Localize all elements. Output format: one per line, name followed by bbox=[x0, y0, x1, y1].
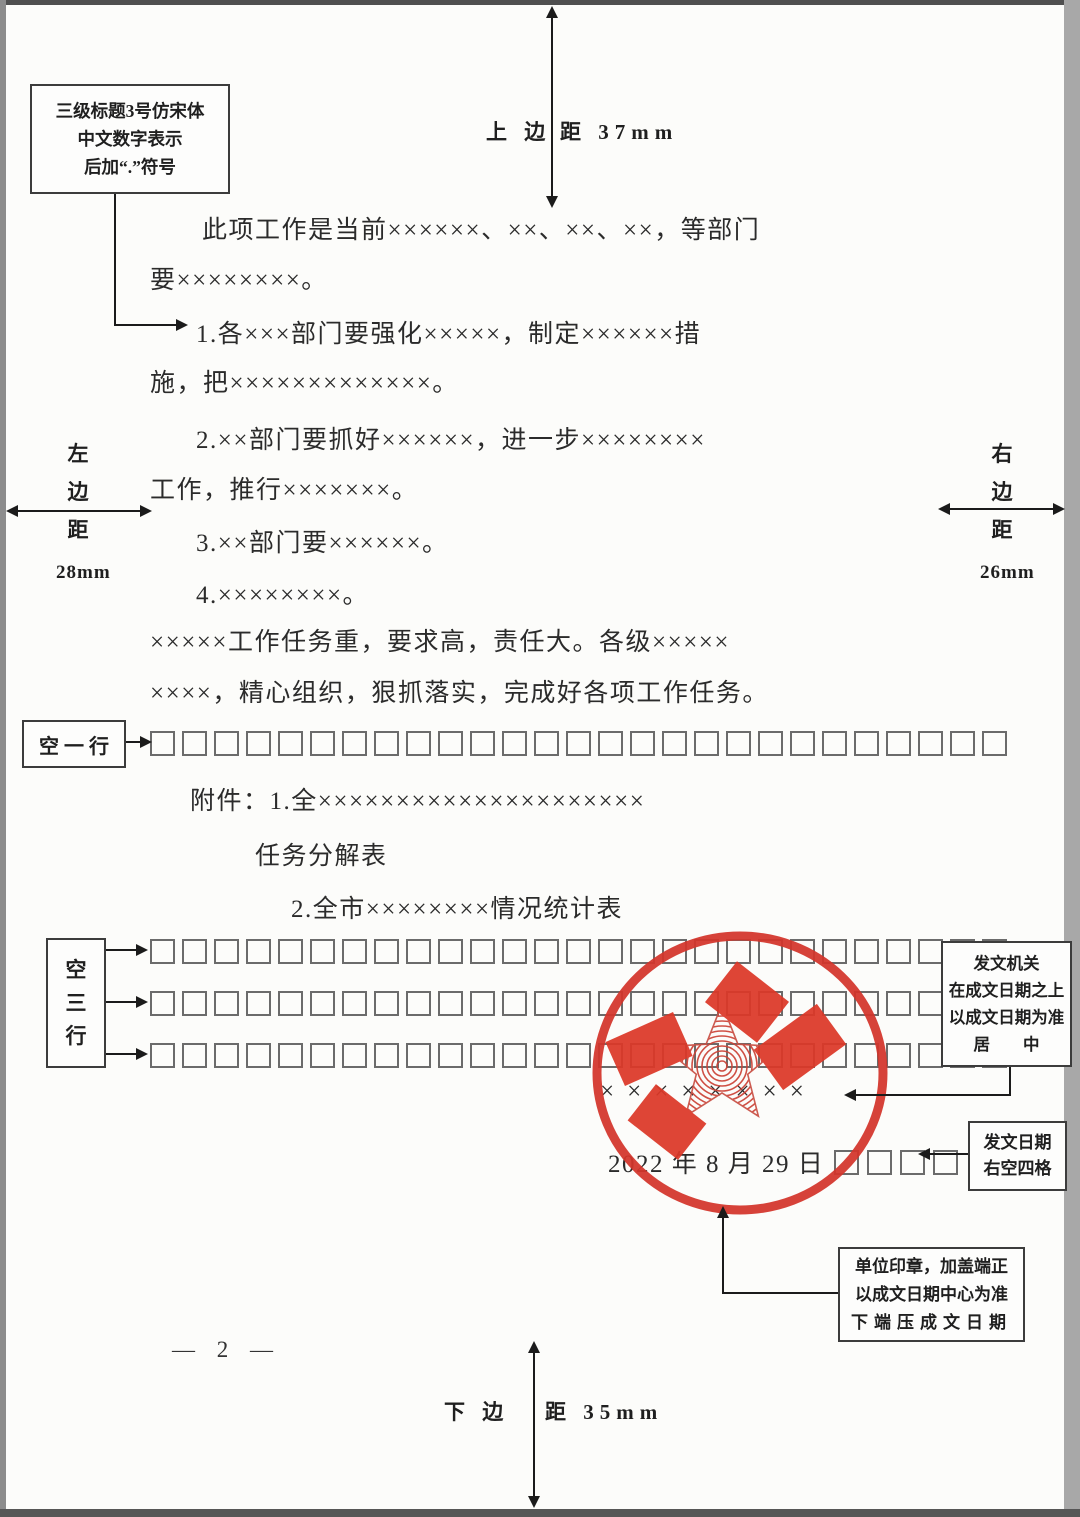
blank-square bbox=[950, 731, 975, 756]
blank-square bbox=[406, 991, 431, 1016]
blank-square bbox=[758, 991, 783, 1016]
blank-square bbox=[694, 731, 719, 756]
blank-square bbox=[150, 731, 175, 756]
blank-square bbox=[918, 939, 943, 964]
blank-square bbox=[502, 1043, 527, 1068]
blank-square bbox=[694, 939, 719, 964]
note-line: 居 中 bbox=[974, 1031, 1040, 1058]
blank-square bbox=[374, 991, 399, 1016]
blank-square bbox=[662, 731, 687, 756]
body-line: 3.××部门要××××××。 bbox=[196, 523, 449, 559]
issuing-authority-placeholder: ×××××××× bbox=[600, 1078, 817, 1106]
blank-square bbox=[726, 731, 751, 756]
arrow-head-icon bbox=[938, 503, 950, 515]
blank-square bbox=[374, 1043, 399, 1068]
note-line: 后加“.”符号 bbox=[84, 153, 176, 181]
blank-square bbox=[694, 1043, 719, 1068]
blank-square bbox=[310, 939, 335, 964]
blank-square bbox=[886, 1043, 911, 1068]
blank-square-row bbox=[150, 731, 1007, 756]
note-line: 中文数字表示 bbox=[78, 125, 183, 153]
blank-square bbox=[278, 991, 303, 1016]
label-char: 边 bbox=[68, 482, 89, 503]
label-char: 边 bbox=[992, 482, 1013, 503]
blank-square bbox=[502, 731, 527, 756]
blank-square bbox=[822, 939, 847, 964]
blank-square bbox=[854, 731, 879, 756]
blank-square bbox=[886, 991, 911, 1016]
blank-square bbox=[854, 939, 879, 964]
body-line: 工作，推行×××××××。 bbox=[150, 470, 418, 506]
connector-line bbox=[856, 1094, 1011, 1096]
blank-square bbox=[758, 939, 783, 964]
blank-square bbox=[867, 1150, 892, 1175]
blank-square bbox=[790, 991, 815, 1016]
blank-square bbox=[834, 1150, 859, 1175]
blank-square bbox=[150, 991, 175, 1016]
scan-edge-right bbox=[1064, 0, 1080, 1517]
arrow-head-icon bbox=[140, 736, 152, 748]
right-margin-label: 右 边 距 bbox=[988, 444, 1016, 541]
blank-square bbox=[214, 991, 239, 1016]
blank-square bbox=[438, 1043, 463, 1068]
label-char: 空 bbox=[66, 960, 87, 981]
body-line: ××××，精心组织，狠抓落实，完成好各项工作任务。 bbox=[150, 673, 769, 709]
blank-square bbox=[182, 939, 207, 964]
arrow-head-icon bbox=[140, 505, 152, 517]
left-margin-arrow bbox=[14, 510, 142, 512]
blank-square bbox=[342, 1043, 367, 1068]
page-number: — 2 — bbox=[172, 1337, 281, 1363]
label-char: 行 bbox=[66, 1026, 87, 1047]
blank-square bbox=[342, 991, 367, 1016]
connector-line bbox=[104, 1053, 138, 1055]
connector-line bbox=[930, 1153, 968, 1155]
label-char: 距 bbox=[992, 520, 1013, 541]
blank-square bbox=[246, 939, 271, 964]
top-margin-value: 距 37mm bbox=[560, 116, 678, 146]
blank-square bbox=[630, 1043, 655, 1068]
note-line: 右空四格 bbox=[984, 1156, 1052, 1182]
body-line: 2.××部门要抓好××××××，进一步×××××××× bbox=[196, 420, 706, 456]
blank-square bbox=[662, 991, 687, 1016]
right-margin-value: 26mm bbox=[980, 562, 1035, 584]
blank-square bbox=[214, 731, 239, 756]
top-margin-arrow bbox=[551, 10, 553, 202]
blank-square-row bbox=[150, 939, 1007, 964]
right-margin-arrow bbox=[946, 508, 1059, 510]
note-vertical-label: 空 三 行 bbox=[66, 960, 87, 1047]
blank-square bbox=[438, 939, 463, 964]
attachment-line: 2.全市××××××××情况统计表 bbox=[291, 889, 623, 925]
blank-square bbox=[598, 1043, 623, 1068]
blank-square bbox=[726, 991, 751, 1016]
blank-square bbox=[790, 939, 815, 964]
connector-line bbox=[1009, 1065, 1011, 1096]
note-line: 空 一 行 bbox=[39, 730, 109, 759]
blank-three-lines-note: 空 三 行 bbox=[46, 938, 106, 1068]
blank-square bbox=[886, 731, 911, 756]
blank-square bbox=[310, 731, 335, 756]
blank-square bbox=[438, 991, 463, 1016]
blank-square bbox=[278, 939, 303, 964]
arrow-head-icon bbox=[136, 996, 148, 1008]
blank-square bbox=[982, 731, 1007, 756]
blank-square bbox=[822, 731, 847, 756]
blank-square bbox=[918, 991, 943, 1016]
blank-square bbox=[886, 939, 911, 964]
connector-line bbox=[722, 1218, 724, 1294]
blank-square bbox=[502, 939, 527, 964]
blank-square bbox=[214, 1043, 239, 1068]
blank-square bbox=[502, 991, 527, 1016]
note-line: 三级标题3号仿宋体 bbox=[56, 97, 205, 125]
heading-style-note: 三级标题3号仿宋体 中文数字表示 后加“.”符号 bbox=[30, 84, 230, 194]
blank-square bbox=[246, 991, 271, 1016]
blank-square bbox=[918, 1043, 943, 1068]
blank-square bbox=[182, 991, 207, 1016]
blank-square bbox=[822, 991, 847, 1016]
blank-square bbox=[854, 991, 879, 1016]
arrow-head-icon bbox=[176, 319, 188, 331]
blank-square bbox=[310, 991, 335, 1016]
blank-square bbox=[630, 939, 655, 964]
note-line: 在成文日期之上 bbox=[949, 977, 1065, 1004]
blank-square bbox=[406, 1043, 431, 1068]
attachment-line: 任务分解表 bbox=[255, 836, 388, 872]
blank-square bbox=[246, 1043, 271, 1068]
blank-square bbox=[150, 939, 175, 964]
arrow-head-icon bbox=[844, 1089, 856, 1101]
arrow-head-icon bbox=[6, 505, 18, 517]
arrow-head-icon bbox=[717, 1206, 729, 1218]
blank-square bbox=[918, 731, 943, 756]
blank-square bbox=[534, 991, 559, 1016]
note-line: 单位印章，加盖端正 bbox=[855, 1253, 1008, 1281]
attachment-line: 附件：1.全××××××××××××××××××××× bbox=[190, 781, 645, 817]
note-line: 下端压成文日期 bbox=[851, 1309, 1012, 1337]
blank-square bbox=[278, 1043, 303, 1068]
blank-square bbox=[470, 1043, 495, 1068]
blank-square bbox=[854, 1043, 879, 1068]
note-line: 发文机关 bbox=[974, 950, 1040, 977]
blank-square bbox=[566, 731, 591, 756]
blank-square bbox=[406, 939, 431, 964]
scan-edge-top bbox=[0, 0, 1080, 5]
blank-square bbox=[822, 1043, 847, 1068]
blank-one-line-note: 空 一 行 bbox=[22, 720, 126, 768]
blank-square bbox=[758, 1043, 783, 1068]
body-line: 1.各×××部门要强化×××××，制定××××××措 bbox=[196, 314, 701, 350]
arrow-head-icon bbox=[136, 1048, 148, 1060]
blank-square bbox=[534, 1043, 559, 1068]
blank-square bbox=[278, 731, 303, 756]
arrow-head-icon bbox=[546, 196, 558, 208]
note-line: 以成文日期中心为准 bbox=[855, 1281, 1008, 1309]
document-date: 2022 年 8 月 29 日 bbox=[608, 1144, 824, 1180]
document-page: 三级标题3号仿宋体 中文数字表示 后加“.”符号 上 边 距 37mm 此项工作… bbox=[0, 0, 1080, 1517]
blank-square bbox=[310, 1043, 335, 1068]
label-char: 左 bbox=[68, 444, 89, 465]
blank-square bbox=[790, 731, 815, 756]
body-line: 此项工作是当前××××××、××、××、××，等部门 bbox=[202, 210, 760, 246]
connector-line bbox=[104, 949, 138, 951]
blank-square bbox=[374, 939, 399, 964]
blank-square bbox=[598, 991, 623, 1016]
blank-square bbox=[406, 731, 431, 756]
scan-edge-left bbox=[0, 0, 6, 1517]
blank-square bbox=[246, 731, 271, 756]
body-line: ×××××工作任务重，要求高，责任大。各级××××× bbox=[150, 622, 730, 658]
connector-line bbox=[722, 1292, 838, 1294]
label-char: 三 bbox=[66, 993, 87, 1014]
bottom-margin-value: 距 35mm bbox=[545, 1396, 663, 1426]
blank-square bbox=[662, 939, 687, 964]
left-margin-label: 左 边 距 bbox=[64, 444, 92, 541]
blank-square bbox=[342, 939, 367, 964]
arrow-head-icon bbox=[546, 6, 558, 18]
blank-square bbox=[630, 991, 655, 1016]
seal-note: 单位印章，加盖端正 以成文日期中心为准 下端压成文日期 bbox=[838, 1247, 1025, 1342]
body-line: 施，把×××××××××××××。 bbox=[150, 363, 459, 399]
left-margin-value: 28mm bbox=[56, 562, 111, 584]
note-line: 发文日期 bbox=[984, 1130, 1052, 1156]
blank-square-row bbox=[150, 1043, 1007, 1068]
blank-square bbox=[598, 731, 623, 756]
body-line: 4.××××××××。 bbox=[196, 575, 369, 611]
connector-line bbox=[104, 1001, 138, 1003]
connector-line bbox=[114, 190, 116, 326]
blank-square bbox=[470, 939, 495, 964]
blank-square bbox=[374, 731, 399, 756]
blank-square bbox=[662, 1043, 687, 1068]
blank-square bbox=[598, 939, 623, 964]
blank-square bbox=[534, 939, 559, 964]
blank-square bbox=[694, 991, 719, 1016]
label-char: 右 bbox=[992, 444, 1013, 465]
issuer-note: 发文机关 在成文日期之上 以成文日期为准 居 中 bbox=[941, 941, 1072, 1067]
blank-square bbox=[470, 991, 495, 1016]
blank-square bbox=[438, 731, 463, 756]
scan-edge-bottom bbox=[0, 1509, 1080, 1517]
blank-square bbox=[630, 731, 655, 756]
top-margin-label: 上 边 bbox=[486, 116, 551, 146]
blank-square bbox=[790, 1043, 815, 1068]
bottom-margin-arrow bbox=[533, 1347, 535, 1500]
body-line: 要××××××××。 bbox=[150, 260, 328, 296]
blank-square bbox=[214, 939, 239, 964]
document-date-line: 2022 年 8 月 29 日 bbox=[608, 1144, 958, 1180]
arrow-head-icon bbox=[1053, 503, 1065, 515]
blank-square bbox=[150, 1043, 175, 1068]
blank-square bbox=[182, 1043, 207, 1068]
blank-square bbox=[566, 991, 591, 1016]
arrow-head-icon bbox=[528, 1341, 540, 1353]
blank-square bbox=[182, 731, 207, 756]
date-note: 发文日期 右空四格 bbox=[968, 1121, 1067, 1191]
arrow-head-icon bbox=[136, 944, 148, 956]
blank-square bbox=[726, 1043, 751, 1068]
arrow-head-icon bbox=[918, 1148, 930, 1160]
blank-square-row bbox=[150, 991, 1007, 1016]
connector-line bbox=[114, 324, 178, 326]
blank-square bbox=[342, 731, 367, 756]
blank-square bbox=[534, 731, 559, 756]
blank-square bbox=[470, 731, 495, 756]
bottom-margin-label: 下 边 bbox=[444, 1396, 509, 1426]
note-line: 以成文日期为准 bbox=[949, 1004, 1065, 1031]
blank-square bbox=[566, 939, 591, 964]
label-char: 距 bbox=[68, 520, 89, 541]
blank-square bbox=[758, 731, 783, 756]
blank-square bbox=[566, 1043, 591, 1068]
blank-square bbox=[726, 939, 751, 964]
arrow-head-icon bbox=[528, 1496, 540, 1508]
